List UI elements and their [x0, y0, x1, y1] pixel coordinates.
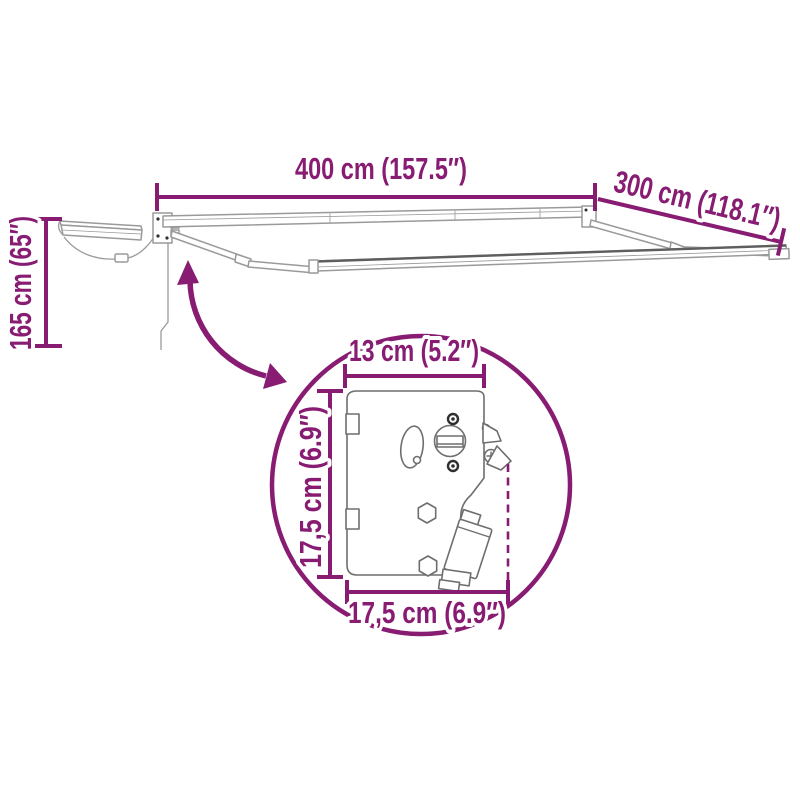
depth-label: 300 cm (118.1″)	[611, 164, 785, 237]
dimension-height: 165 cm (65″)	[3, 216, 62, 350]
detail-callout: 13 cm (5.2″) 17,5 cm (6.9″) 17,5 cm (6.9…	[272, 333, 570, 634]
awning-sketch	[59, 206, 790, 350]
hex-bolt-lower	[419, 556, 436, 576]
bolt-top	[448, 414, 458, 424]
crank-rod	[161, 243, 168, 350]
bracket-depth-label: 17,5 cm (6.9″)	[348, 595, 506, 630]
hex-bolt-upper	[418, 503, 435, 523]
left-arm	[171, 231, 316, 273]
bolt-bottom	[448, 461, 458, 471]
awning-dimension-diagram: 400 cm (157.5″) 300 cm (118.1″) 165 cm (…	[0, 0, 800, 800]
rotation-arrow-icon	[177, 260, 287, 389]
bracket-width-label: 13 cm (5.2″)	[349, 333, 479, 368]
width-label: 400 cm (157.5″)	[295, 151, 467, 186]
dimension-depth: 300 cm (118.1″)	[595, 161, 790, 256]
front-bar	[309, 245, 789, 273]
cassette-cord	[64, 237, 116, 259]
height-label: 165 cm (65″)	[3, 216, 38, 350]
dimension-width: 400 cm (157.5″)	[157, 151, 595, 211]
bracket-height-label: 17,5 cm (6.9″)	[293, 406, 328, 568]
cassette-retracted	[59, 221, 157, 262]
back-rail	[163, 207, 589, 227]
